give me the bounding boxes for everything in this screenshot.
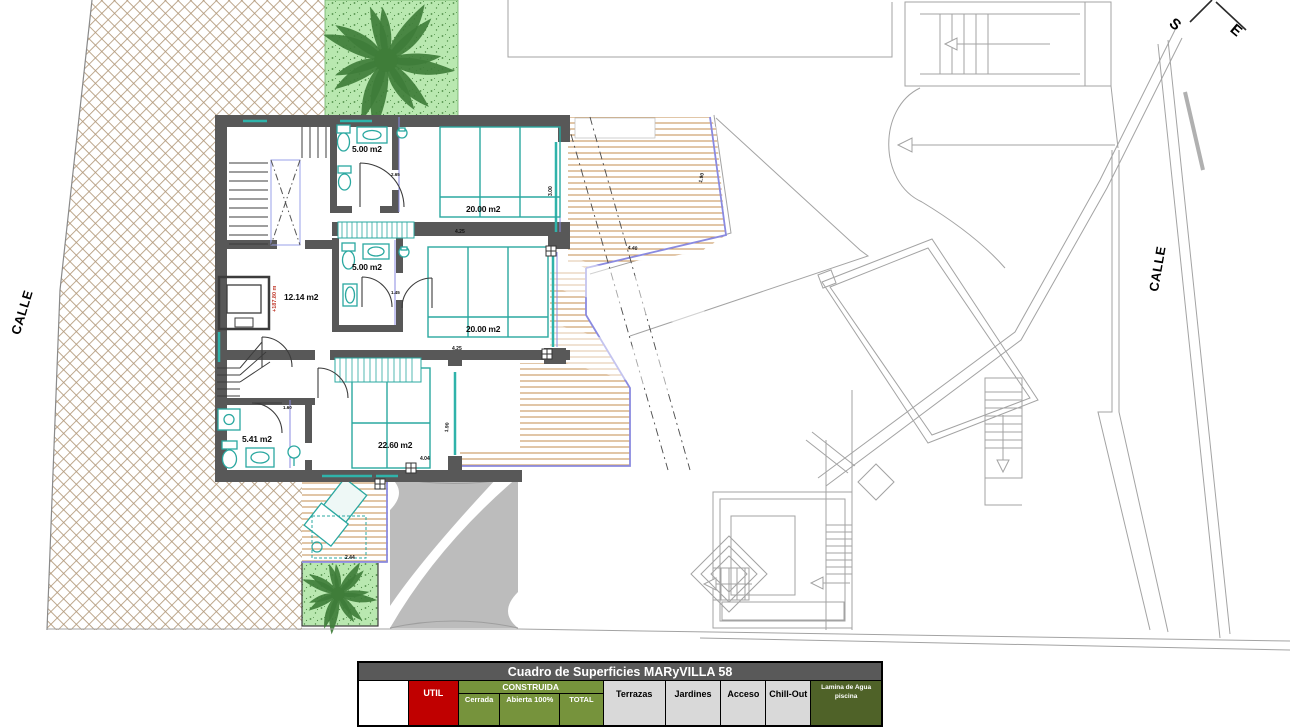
deck-east-top [568,117,726,268]
room-label-bed-low: 22.60 m2 [378,440,412,450]
surfaces-col-acceso: Acceso [721,681,766,725]
street-paving-hatch [47,0,325,630]
garden-bottom [301,561,378,635]
dim-bath-mid: 1.45 [391,290,400,295]
surfaces-lamina-line1: Lamina de Agua [811,683,881,692]
floor-plan-drawing [0,0,1290,698]
floor-plan-page: { "plan": { "streets": { "left": "CALLE"… [0,0,1290,698]
pool [818,239,1038,443]
dim-bed-mid-width: 4.25 [452,346,462,352]
surfaces-col-jardines: Jardines [666,681,722,725]
dim-bath-low: 1.60 [283,405,292,410]
room-label-bath-mid: 5.00 m2 [352,262,382,272]
room-label-hall: 12.14 m2 [284,292,318,302]
surfaces-table-title: Cuadro de Superficies MARyVILLA 58 [359,663,881,681]
dim-deck-south: 2.44 [345,555,355,561]
surfaces-table: Cuadro de Superficies MARyVILLA 58 UTIL … [357,661,883,727]
surfaces-lamina-line2: piscina [811,692,881,701]
dim-deck-east: 4.40 [627,245,637,252]
dim-bath-top: 2.65 [391,172,400,177]
surfaces-col-empty [359,681,409,725]
dim-bed-low-window: 1.90 [444,422,451,432]
surfaces-subcol-cerrada: Cerrada [459,694,501,725]
surfaces-col-terrazas: Terrazas [604,681,666,725]
surfaces-col-construida: CONSTRUIDA Cerrada Abierta 100% TOTAL [459,681,604,725]
surfaces-subcol-abierta: Abierta 100% [500,694,560,725]
surfaces-col-chillout: Chill-Out [766,681,811,725]
room-label-bed-top: 20.00 m2 [466,204,500,214]
level-mark: +187.80 m [272,286,278,312]
stairs-main [229,127,326,245]
doors [252,163,432,433]
garden-top [321,0,458,132]
room-label-bed-mid: 20.00 m2 [466,324,500,334]
surfaces-col-lamina: Lamina de Agua piscina [811,681,881,725]
dim-bed-low-width: 4.04 [420,456,430,462]
surfaces-subcol-total: TOTAL [560,694,603,725]
room-label-bath-top: 5.00 m2 [352,144,382,154]
dim-bed-top-width: 4.25 [455,229,465,235]
shade-sail [390,477,518,628]
surfaces-construida-label: CONSTRUIDA [459,681,603,694]
surfaces-col-util: UTIL [409,681,459,725]
dim-bed-top-window: 3.00 [548,186,554,196]
surfaces-table-header-row: UTIL CONSTRUIDA Cerrada Abierta 100% TOT… [359,681,881,725]
room-label-bath-low: 5.41 m2 [242,434,272,444]
